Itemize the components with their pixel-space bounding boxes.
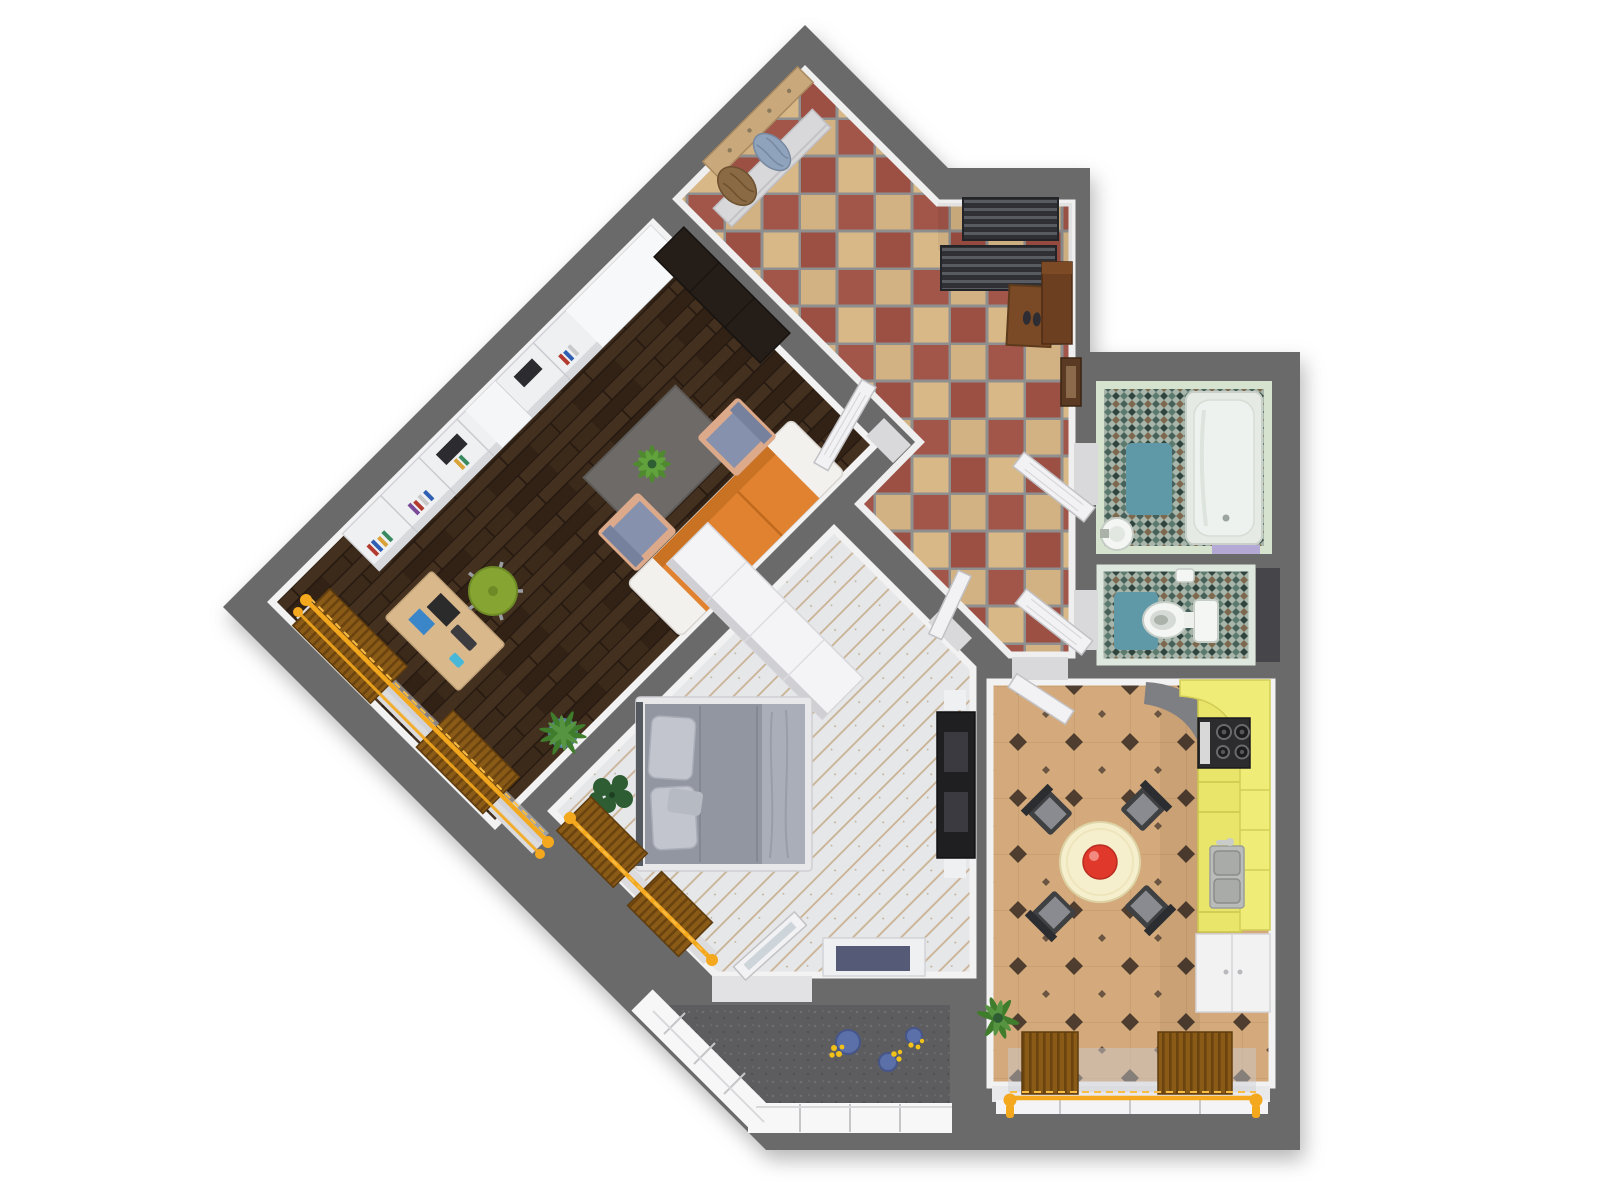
kitchen-shadow bbox=[1160, 690, 1200, 1080]
toilet-hinge bbox=[1184, 612, 1194, 628]
window-glass bbox=[996, 1100, 1268, 1114]
hall-cabinet bbox=[1042, 262, 1072, 344]
dining-table bbox=[1060, 822, 1140, 902]
sink-basin bbox=[1214, 879, 1240, 903]
vent-shaft bbox=[1256, 568, 1280, 662]
cooktop-controls bbox=[1200, 722, 1210, 764]
bathroom-sink bbox=[1100, 518, 1133, 550]
red-bowl bbox=[1083, 845, 1117, 879]
kitchen-blind-1 bbox=[1022, 1032, 1078, 1094]
hall-cabinet-top bbox=[1042, 262, 1072, 274]
faucet bbox=[1100, 529, 1109, 538]
bath-mat bbox=[1126, 443, 1172, 515]
tv-screen bbox=[944, 732, 968, 772]
tub-drain bbox=[1223, 515, 1230, 522]
rod-finial bbox=[300, 594, 312, 606]
pillow bbox=[648, 716, 696, 781]
cooktop bbox=[1198, 718, 1250, 768]
lavender-towel bbox=[1212, 545, 1260, 554]
speaker bbox=[944, 690, 966, 710]
kitchen-sink bbox=[1210, 838, 1244, 908]
headboard bbox=[636, 702, 643, 866]
small-cushion bbox=[666, 788, 703, 816]
appliance-cabinet bbox=[1196, 934, 1270, 1012]
floor-plan-canvas bbox=[0, 0, 1600, 1200]
wc-cistern-box bbox=[1176, 569, 1194, 582]
palm-plant bbox=[633, 445, 671, 483]
picture-frame bbox=[1061, 358, 1081, 406]
bowl-highlight bbox=[1089, 851, 1099, 861]
sink-basin bbox=[1214, 851, 1240, 875]
bed bbox=[636, 697, 812, 871]
tv-unit bbox=[937, 690, 975, 878]
toilet-tank bbox=[1194, 600, 1218, 642]
tv-screen bbox=[944, 792, 968, 832]
speaker bbox=[944, 858, 966, 878]
bedroom-desk bbox=[823, 938, 925, 976]
bathtub bbox=[1186, 392, 1262, 544]
bedroom-window-sill bbox=[712, 976, 812, 1002]
rod-finial bbox=[542, 836, 554, 848]
floor-plan-stage bbox=[0, 0, 1600, 1200]
kitchen-blind-2 bbox=[1158, 1032, 1232, 1094]
bed-throw bbox=[762, 704, 805, 864]
